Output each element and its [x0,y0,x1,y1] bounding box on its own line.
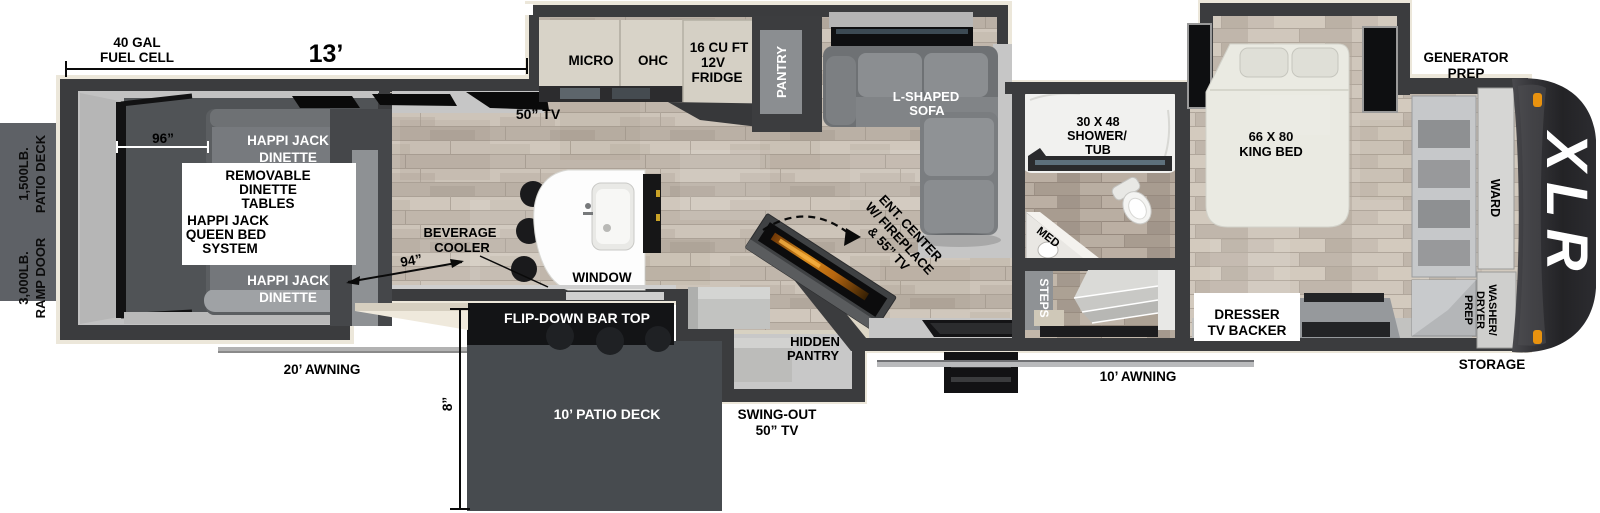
svg-text:XLR: XLR [1534,130,1599,282]
svg-text:QUEEN BED: QUEEN BED [186,227,267,242]
svg-text:DRYER: DRYER [1474,291,1486,329]
svg-text:FLIP-DOWN BAR TOP: FLIP-DOWN BAR TOP [504,310,650,326]
svg-text:16 CU FT: 16 CU FT [690,40,749,55]
svg-text:FUEL CELL: FUEL CELL [100,50,174,65]
svg-text:TUB: TUB [1085,143,1111,157]
svg-text:DRESSER: DRESSER [1214,307,1280,322]
svg-text:MICRO: MICRO [569,53,614,68]
svg-text:L-SHAPED: L-SHAPED [893,89,959,104]
svg-text:10’ AWNING: 10’ AWNING [1100,369,1177,384]
svg-text:SOFA: SOFA [909,103,945,118]
svg-text:SYSTEM: SYSTEM [202,241,258,256]
svg-text:DINETTE: DINETTE [239,182,297,197]
svg-text:50” TV: 50” TV [516,106,561,122]
svg-text:10’ PATIO DECK: 10’ PATIO DECK [554,406,661,422]
svg-text:KING BED: KING BED [1239,144,1303,159]
svg-text:PREP: PREP [1448,66,1485,81]
svg-text:WARD: WARD [1488,179,1502,217]
svg-text:BEVERAGE: BEVERAGE [424,225,497,240]
svg-text:WASHER/: WASHER/ [1486,284,1498,335]
svg-text:PREP: PREP [1462,295,1474,325]
svg-text:3,000LB.: 3,000LB. [16,251,31,304]
svg-text:GENERATOR: GENERATOR [1423,50,1508,65]
svg-text:TV BACKER: TV BACKER [1208,323,1287,338]
svg-text:SHOWER/: SHOWER/ [1067,129,1127,143]
svg-text:50” TV: 50” TV [756,423,799,438]
svg-text:13’: 13’ [309,40,344,68]
svg-text:PATIO DECK: PATIO DECK [33,134,48,213]
svg-text:8”: 8” [440,397,455,411]
svg-text:40 GAL: 40 GAL [113,35,160,50]
svg-text:20’ AWNING: 20’ AWNING [284,362,361,377]
svg-text:1,500LB.: 1,500LB. [16,147,31,200]
svg-text:COOLER: COOLER [434,240,490,255]
svg-text:96”: 96” [152,131,174,146]
svg-text:HAPPI JACK: HAPPI JACK [247,133,329,148]
svg-text:DINETTE: DINETTE [259,150,317,165]
svg-text:WINDOW: WINDOW [572,270,631,285]
svg-text:PANTRY: PANTRY [787,348,839,363]
svg-text:OHC: OHC [638,53,668,68]
svg-text:HAPPI JACK: HAPPI JACK [247,273,329,288]
svg-text:TABLES: TABLES [242,196,295,211]
svg-text:FRIDGE: FRIDGE [691,70,742,85]
svg-text:HAPPI JACK: HAPPI JACK [187,213,269,228]
svg-text:SWING-OUT: SWING-OUT [738,407,817,422]
svg-text:REMOVABLE: REMOVABLE [225,168,310,183]
svg-text:DINETTE: DINETTE [259,290,317,305]
svg-text:12V: 12V [701,55,725,70]
svg-text:HIDDEN: HIDDEN [790,334,840,349]
svg-text:STORAGE: STORAGE [1459,357,1526,372]
svg-text:RAMP DOOR: RAMP DOOR [33,237,48,318]
svg-text:30 X 48: 30 X 48 [1076,115,1119,129]
svg-text:PANTRY: PANTRY [774,46,789,98]
svg-text:STEPS: STEPS [1037,278,1051,317]
